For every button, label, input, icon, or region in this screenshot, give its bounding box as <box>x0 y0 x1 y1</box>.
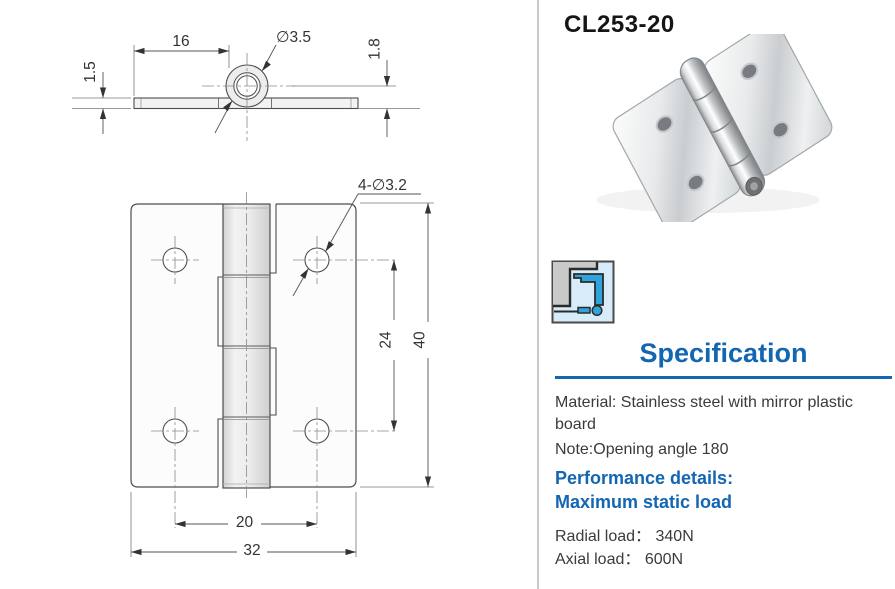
note-line: Note:Opening angle 180 <box>555 441 895 459</box>
material-line-2: board <box>555 416 895 434</box>
mounting-application-icon <box>551 260 615 324</box>
technical-drawing: 16 ∅3.5 1.5 1.8 <box>0 0 540 589</box>
dim-hole-spacing-h-label: 20 <box>236 514 254 531</box>
dim-pin-diameter-label: ∅3.5 <box>276 29 311 46</box>
side-view-drawing: 16 ∅3.5 1.5 1.8 <box>72 29 420 141</box>
dim-width-label: 32 <box>243 542 260 559</box>
material-line-1: Material: Stainless steel with mirror pl… <box>555 394 895 412</box>
dim-holes-label: 4-∅3.2 <box>358 177 407 194</box>
dim-height-label: 40 <box>412 331 429 349</box>
performance-heading: Performance details: <box>555 468 895 489</box>
dim-thickness-label: 1.5 <box>82 61 99 83</box>
front-view-drawing: 4-∅3.2 24 40 20 <box>131 177 434 559</box>
product-datasheet: 16 ∅3.5 1.5 1.8 <box>0 0 895 589</box>
specification-title: Specification <box>555 338 892 369</box>
max-static-load-heading: Maximum static load <box>555 492 895 513</box>
radial-load-line: Radial load： 340N <box>555 522 895 546</box>
dim-knuckle-offset-label: 1.8 <box>367 38 384 60</box>
specification-divider <box>555 376 892 379</box>
product-photo <box>588 34 860 222</box>
axial-load-line: Axial load： 600N <box>555 545 895 569</box>
dim-hole-spacing-v-label: 24 <box>378 331 395 349</box>
panel-divider <box>537 0 539 589</box>
dim-leaf-length-label: 16 <box>172 33 189 50</box>
